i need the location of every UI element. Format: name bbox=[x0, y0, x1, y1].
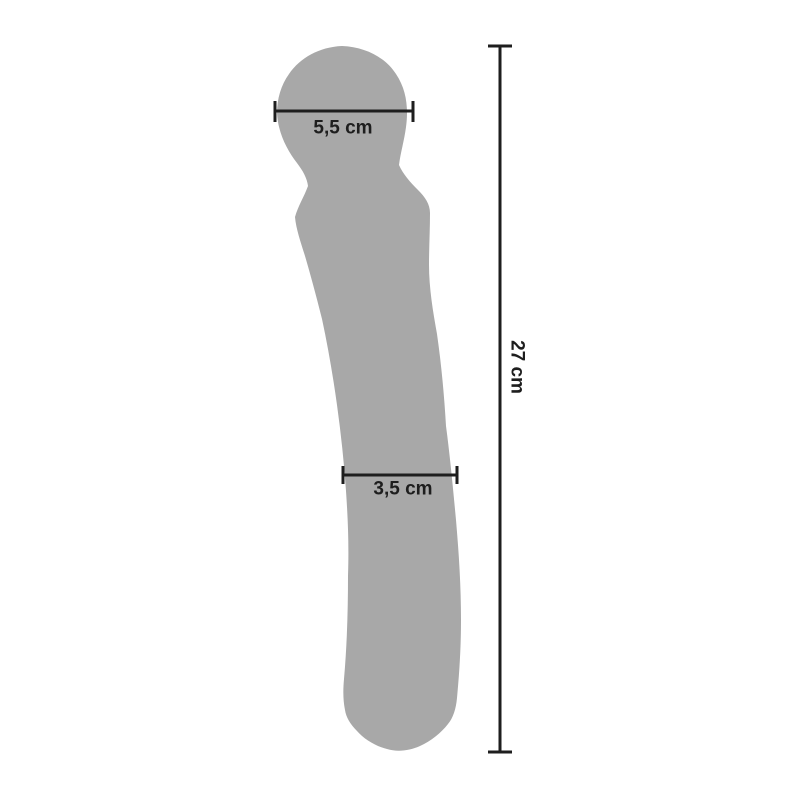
product-silhouette bbox=[277, 46, 461, 751]
total-length-dimension bbox=[488, 46, 512, 752]
total-length-label: 27 cm bbox=[508, 340, 527, 394]
shaft-diameter-label: 3,5 cm bbox=[373, 480, 432, 499]
product-dimension-diagram: 5,5 cm 3,5 cm 27 cm bbox=[0, 0, 800, 800]
head-diameter-label: 5,5 cm bbox=[313, 119, 372, 138]
diagram-svg bbox=[0, 0, 800, 800]
